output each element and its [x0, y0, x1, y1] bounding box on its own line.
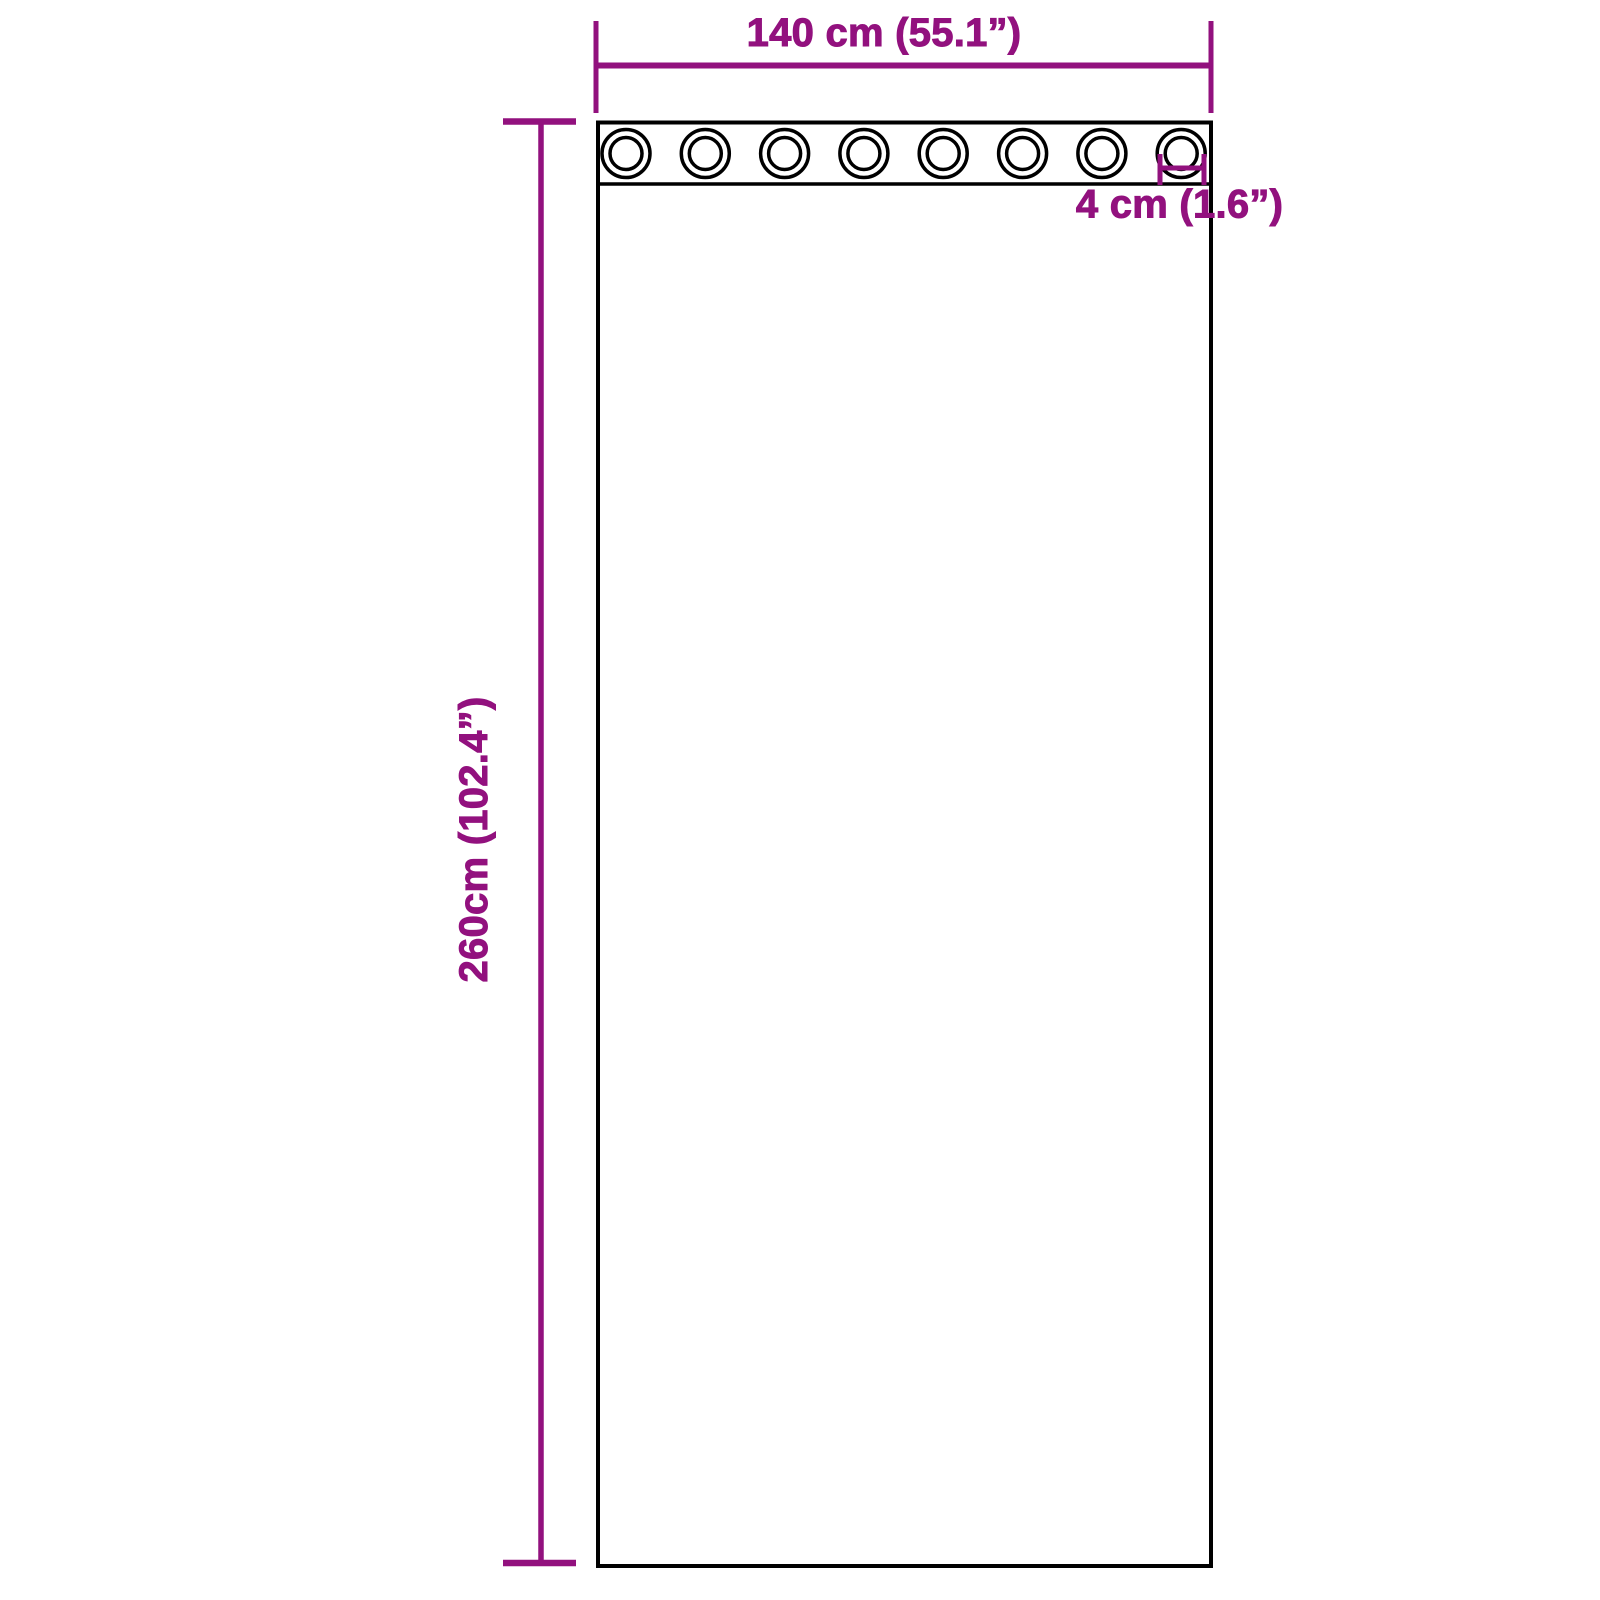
svg-text:140 cm (55.1”): 140 cm (55.1”) [747, 11, 1022, 55]
svg-text:260cm (102.4”): 260cm (102.4”) [452, 697, 496, 983]
svg-text:4 cm (1.6”): 4 cm (1.6”) [1076, 182, 1283, 226]
